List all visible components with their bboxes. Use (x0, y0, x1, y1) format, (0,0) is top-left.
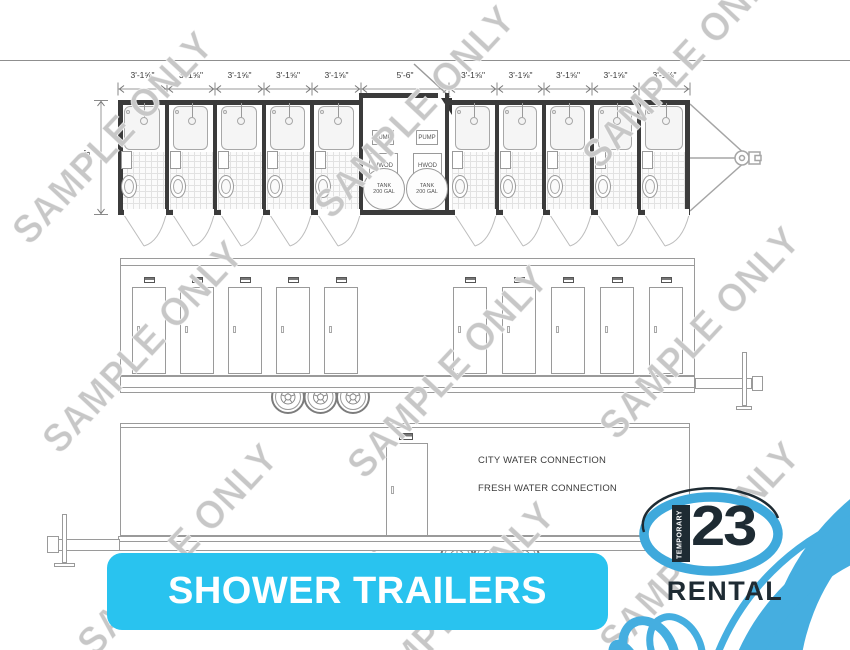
stall-door-opening (550, 209, 591, 216)
sink (500, 151, 511, 169)
toilet-bowl (550, 179, 560, 194)
water-tank: TANK200 GAL (406, 168, 448, 210)
shower-trailer-spec-sheet: CITY WATER CONNECTION FRESH WATER CONNEC… (0, 0, 850, 650)
shower-head-pipe (569, 103, 570, 118)
stall-door-opening (503, 209, 543, 216)
toilet-bowl (124, 179, 134, 194)
door-vent (612, 277, 623, 283)
shower-head-pipe (289, 103, 290, 118)
door-vent (240, 277, 251, 283)
elevation-b-jack-foot (54, 563, 75, 567)
tank-capacity-label: 200 GAL (416, 189, 438, 196)
logo-number: 23 (691, 493, 755, 559)
stall-door-arc (144, 215, 166, 246)
shower-head (237, 117, 245, 125)
door-handle (233, 326, 236, 333)
sink (218, 151, 229, 169)
shower-head-pipe (474, 103, 475, 118)
sink (547, 151, 558, 169)
plan-partition (542, 100, 546, 212)
city-water-connection-label: CITY WATER CONNECTION (478, 455, 606, 466)
shower-head (188, 117, 196, 125)
logo-rental-text: RENTAL (655, 576, 795, 607)
stall-door-arc (475, 215, 496, 246)
shower-drain (272, 110, 276, 114)
shower-drain (175, 110, 179, 114)
shower-drain (320, 110, 324, 114)
door-vent (144, 277, 155, 283)
sink (170, 151, 181, 169)
door-vent (465, 277, 476, 283)
stall-door-arc (618, 215, 638, 246)
top-border-line (0, 60, 850, 61)
toilet-bowl (645, 179, 655, 194)
shower-head (334, 117, 342, 125)
dimension-label: 3'-1⅝" (312, 70, 362, 82)
banner-title: SHOWER TRAILERS (168, 570, 547, 613)
shower-head (518, 117, 526, 125)
stall-door-leaf (645, 215, 665, 246)
stall-door-opening (221, 209, 263, 216)
stall-door-opening (173, 209, 214, 216)
stall-door-leaf (550, 215, 570, 246)
door-handle (391, 486, 394, 494)
shower-drain (552, 110, 556, 114)
toilet-bowl (503, 179, 513, 194)
stall-door-leaf (598, 215, 618, 246)
toilet-bowl (270, 179, 280, 194)
shower-head-pipe (522, 103, 523, 118)
logo-temporary-text: TEMPORARY (677, 505, 686, 565)
stall-door-leaf (455, 215, 475, 246)
plan-partition (262, 100, 266, 212)
door-handle (556, 326, 559, 333)
sink (452, 151, 463, 169)
stall-door-opening (598, 209, 638, 216)
dimension-label: 3'-1⅝" (496, 70, 546, 82)
stall-door-leaf (173, 215, 193, 246)
stall-door-arc (665, 215, 689, 246)
shower-head (470, 117, 478, 125)
toilet-bowl (455, 179, 465, 194)
shower-head (285, 117, 293, 125)
elevation-a-coupler (752, 376, 763, 391)
stall-door-leaf (270, 215, 290, 246)
plan-partition (165, 100, 169, 212)
elevation-a-jack (742, 352, 747, 406)
shower-drain (223, 110, 227, 114)
toilet-bowl (173, 179, 183, 194)
door-vent (661, 277, 672, 283)
stall-door-arc (570, 215, 591, 246)
plan-hitch (690, 104, 761, 211)
shower-head-pipe (338, 103, 339, 118)
logo-numeral-one-bar: TEMPORARY (672, 505, 690, 562)
stall-door-opening (455, 209, 496, 216)
elevation-a-jack-foot (736, 406, 752, 410)
door-handle (329, 326, 332, 333)
plan-wall-right (685, 100, 690, 215)
stall-door-leaf (124, 215, 144, 246)
door-handle (281, 326, 284, 333)
company-logo: TEMPORARY 23 RENTAL (630, 480, 820, 620)
stall-door-opening (645, 209, 689, 216)
plan-partition (495, 100, 499, 212)
elevation-b-tongue (50, 539, 120, 551)
sink (642, 151, 653, 169)
sink (315, 151, 326, 169)
plan-partition (213, 100, 217, 212)
shower-drain (457, 110, 461, 114)
dimension-label: 3'-1⅝" (263, 70, 313, 82)
shower-head-pipe (241, 103, 242, 118)
dimension-label: 3'-1⅝" (543, 70, 593, 82)
shower-head-pipe (192, 103, 193, 118)
shower-head (565, 117, 573, 125)
shower-drain (505, 110, 509, 114)
sink (267, 151, 278, 169)
door-handle (654, 326, 657, 333)
elevation-b-jack (62, 514, 67, 563)
stall-door-leaf (503, 215, 523, 246)
tank-capacity-label: 200 GAL (373, 189, 395, 196)
elevation-b-coupler (47, 536, 59, 553)
door-handle (605, 326, 608, 333)
stall-door-arc (290, 215, 311, 246)
banner: SHOWER TRAILERS (107, 553, 608, 630)
toilet-bowl (221, 179, 231, 194)
stall-door-opening (124, 209, 166, 216)
dimension-label: 3'-1⅝" (215, 70, 265, 82)
door-vent (336, 277, 347, 283)
door-vent (288, 277, 299, 283)
stall-door-arc (523, 215, 543, 246)
